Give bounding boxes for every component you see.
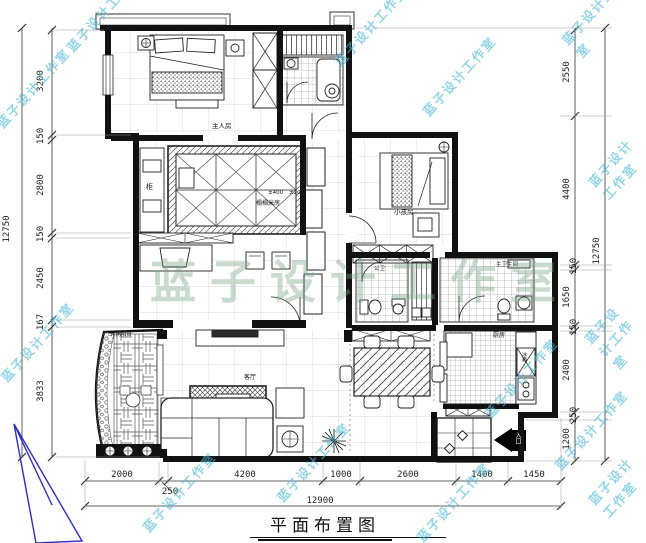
dim-left-150a: 150	[36, 119, 46, 153]
floor-plan-page: 主人房 榻榻米房 ±400 ±200 柜 小孩房 公卫 主卫生间 厨房 冰箱 客…	[0, 0, 646, 543]
dim-bottom-total: 12900	[300, 496, 340, 506]
label-balcony: 休闲阳台	[110, 333, 132, 339]
dim-left-150b: 150	[36, 217, 46, 251]
label-level-b: ±200	[289, 191, 304, 197]
label-entrance: 入口	[514, 432, 520, 444]
dim-bottom-2000: 2000	[102, 470, 142, 480]
dim-right-2400: 2400	[562, 353, 572, 387]
label-level-a: ±400	[268, 191, 283, 197]
dim-right-4400: 4400	[562, 172, 572, 206]
dim-bottom-2600: 2600	[388, 470, 428, 480]
label-tatami-room: 榻榻米房	[256, 201, 280, 207]
balcony	[96, 330, 167, 458]
window-left	[103, 55, 113, 95]
dim-right-2550: 2550	[562, 55, 572, 89]
label-kids-room: 小孩房	[394, 209, 414, 216]
north-arrow	[14, 424, 82, 543]
label-kitchen: 厨房	[493, 333, 505, 339]
label-cabinet: 柜	[146, 184, 153, 191]
dim-left-total: 12750	[2, 212, 12, 246]
dim-left-3833: 3833	[36, 374, 46, 408]
watermark-large: 蓝子设计工作室	[150, 246, 646, 312]
tatami-room	[168, 146, 304, 234]
label-living-room: 客厅	[244, 375, 256, 381]
dim-bottom-4200: 4200	[225, 470, 265, 480]
master-wardrobe	[253, 33, 277, 108]
top-bathroom	[281, 35, 343, 105]
dim-left-2450: 2450	[36, 261, 46, 295]
dim-left-2800: 2800	[36, 168, 46, 202]
dim-right-150b: 150	[569, 310, 579, 344]
label-master-bedroom: 主人房	[212, 123, 232, 130]
dim-bottom-1450: 1450	[514, 470, 554, 480]
dim-bottom-1000: 1000	[321, 470, 361, 480]
entry-hall	[437, 404, 491, 462]
